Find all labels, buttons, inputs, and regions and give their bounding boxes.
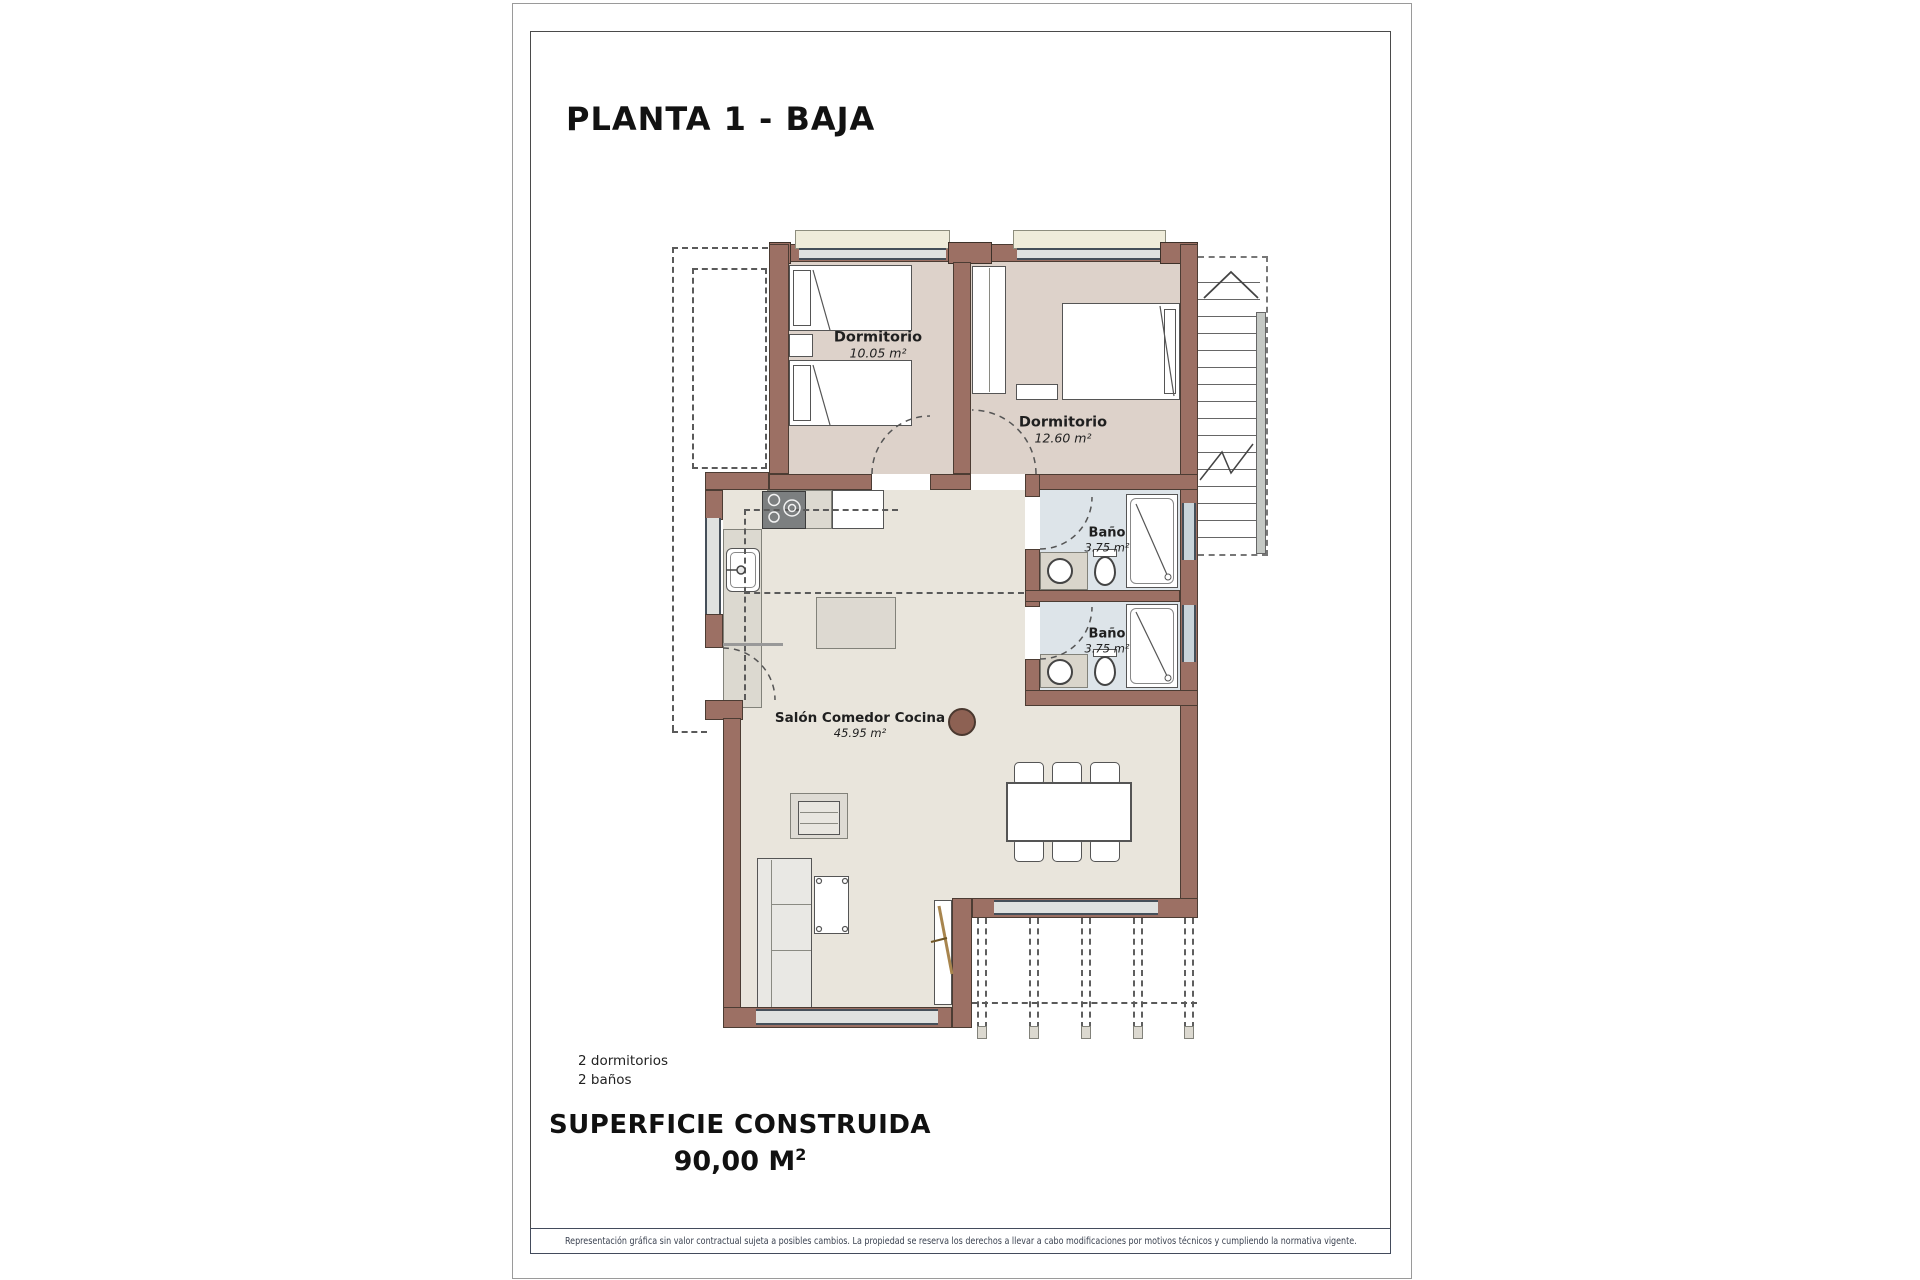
room-area: 10.05 m² <box>834 346 922 361</box>
built-area-value: 90,00 M2 <box>525 1145 955 1177</box>
room-name: Dormitorio <box>834 330 922 346</box>
room-label-bedroom-1: Dormitorio 10.05 m² <box>834 330 922 361</box>
disclaimer-text: Representación gráfica sin valor contrac… <box>565 1236 1357 1247</box>
room-name: Baño <box>1084 526 1129 541</box>
room-area: 45.95 m² <box>775 726 945 740</box>
room-area: 12.60 m² <box>1019 431 1107 446</box>
room-name: Baño <box>1084 627 1129 642</box>
built-area-label: SUPERFICIE CONSTRUIDA <box>525 1110 955 1140</box>
room-label-bedroom-2: Dormitorio 12.60 m² <box>1019 415 1107 446</box>
room-name: Salón Comedor Cocina <box>775 710 945 726</box>
plan-annotations-svg <box>650 230 1290 1060</box>
room-label-bathroom-1: Baño 3.75 m² <box>1084 526 1129 555</box>
summary-bathrooms: 2 baños <box>578 1071 668 1090</box>
built-area-block: SUPERFICIE CONSTRUIDA 90,00 M2 <box>525 1110 955 1177</box>
room-label-bathroom-2: Baño 3.75 m² <box>1084 627 1129 656</box>
room-label-living: Salón Comedor Cocina 45.95 m² <box>775 710 945 740</box>
room-name: Dormitorio <box>1019 415 1107 431</box>
page-title: PLANTA 1 - BAJA <box>566 100 875 138</box>
disclaimer-strip: Representación gráfica sin valor contrac… <box>530 1228 1391 1254</box>
room-area: 3.75 m² <box>1084 541 1129 555</box>
room-area: 3.75 m² <box>1084 642 1129 656</box>
